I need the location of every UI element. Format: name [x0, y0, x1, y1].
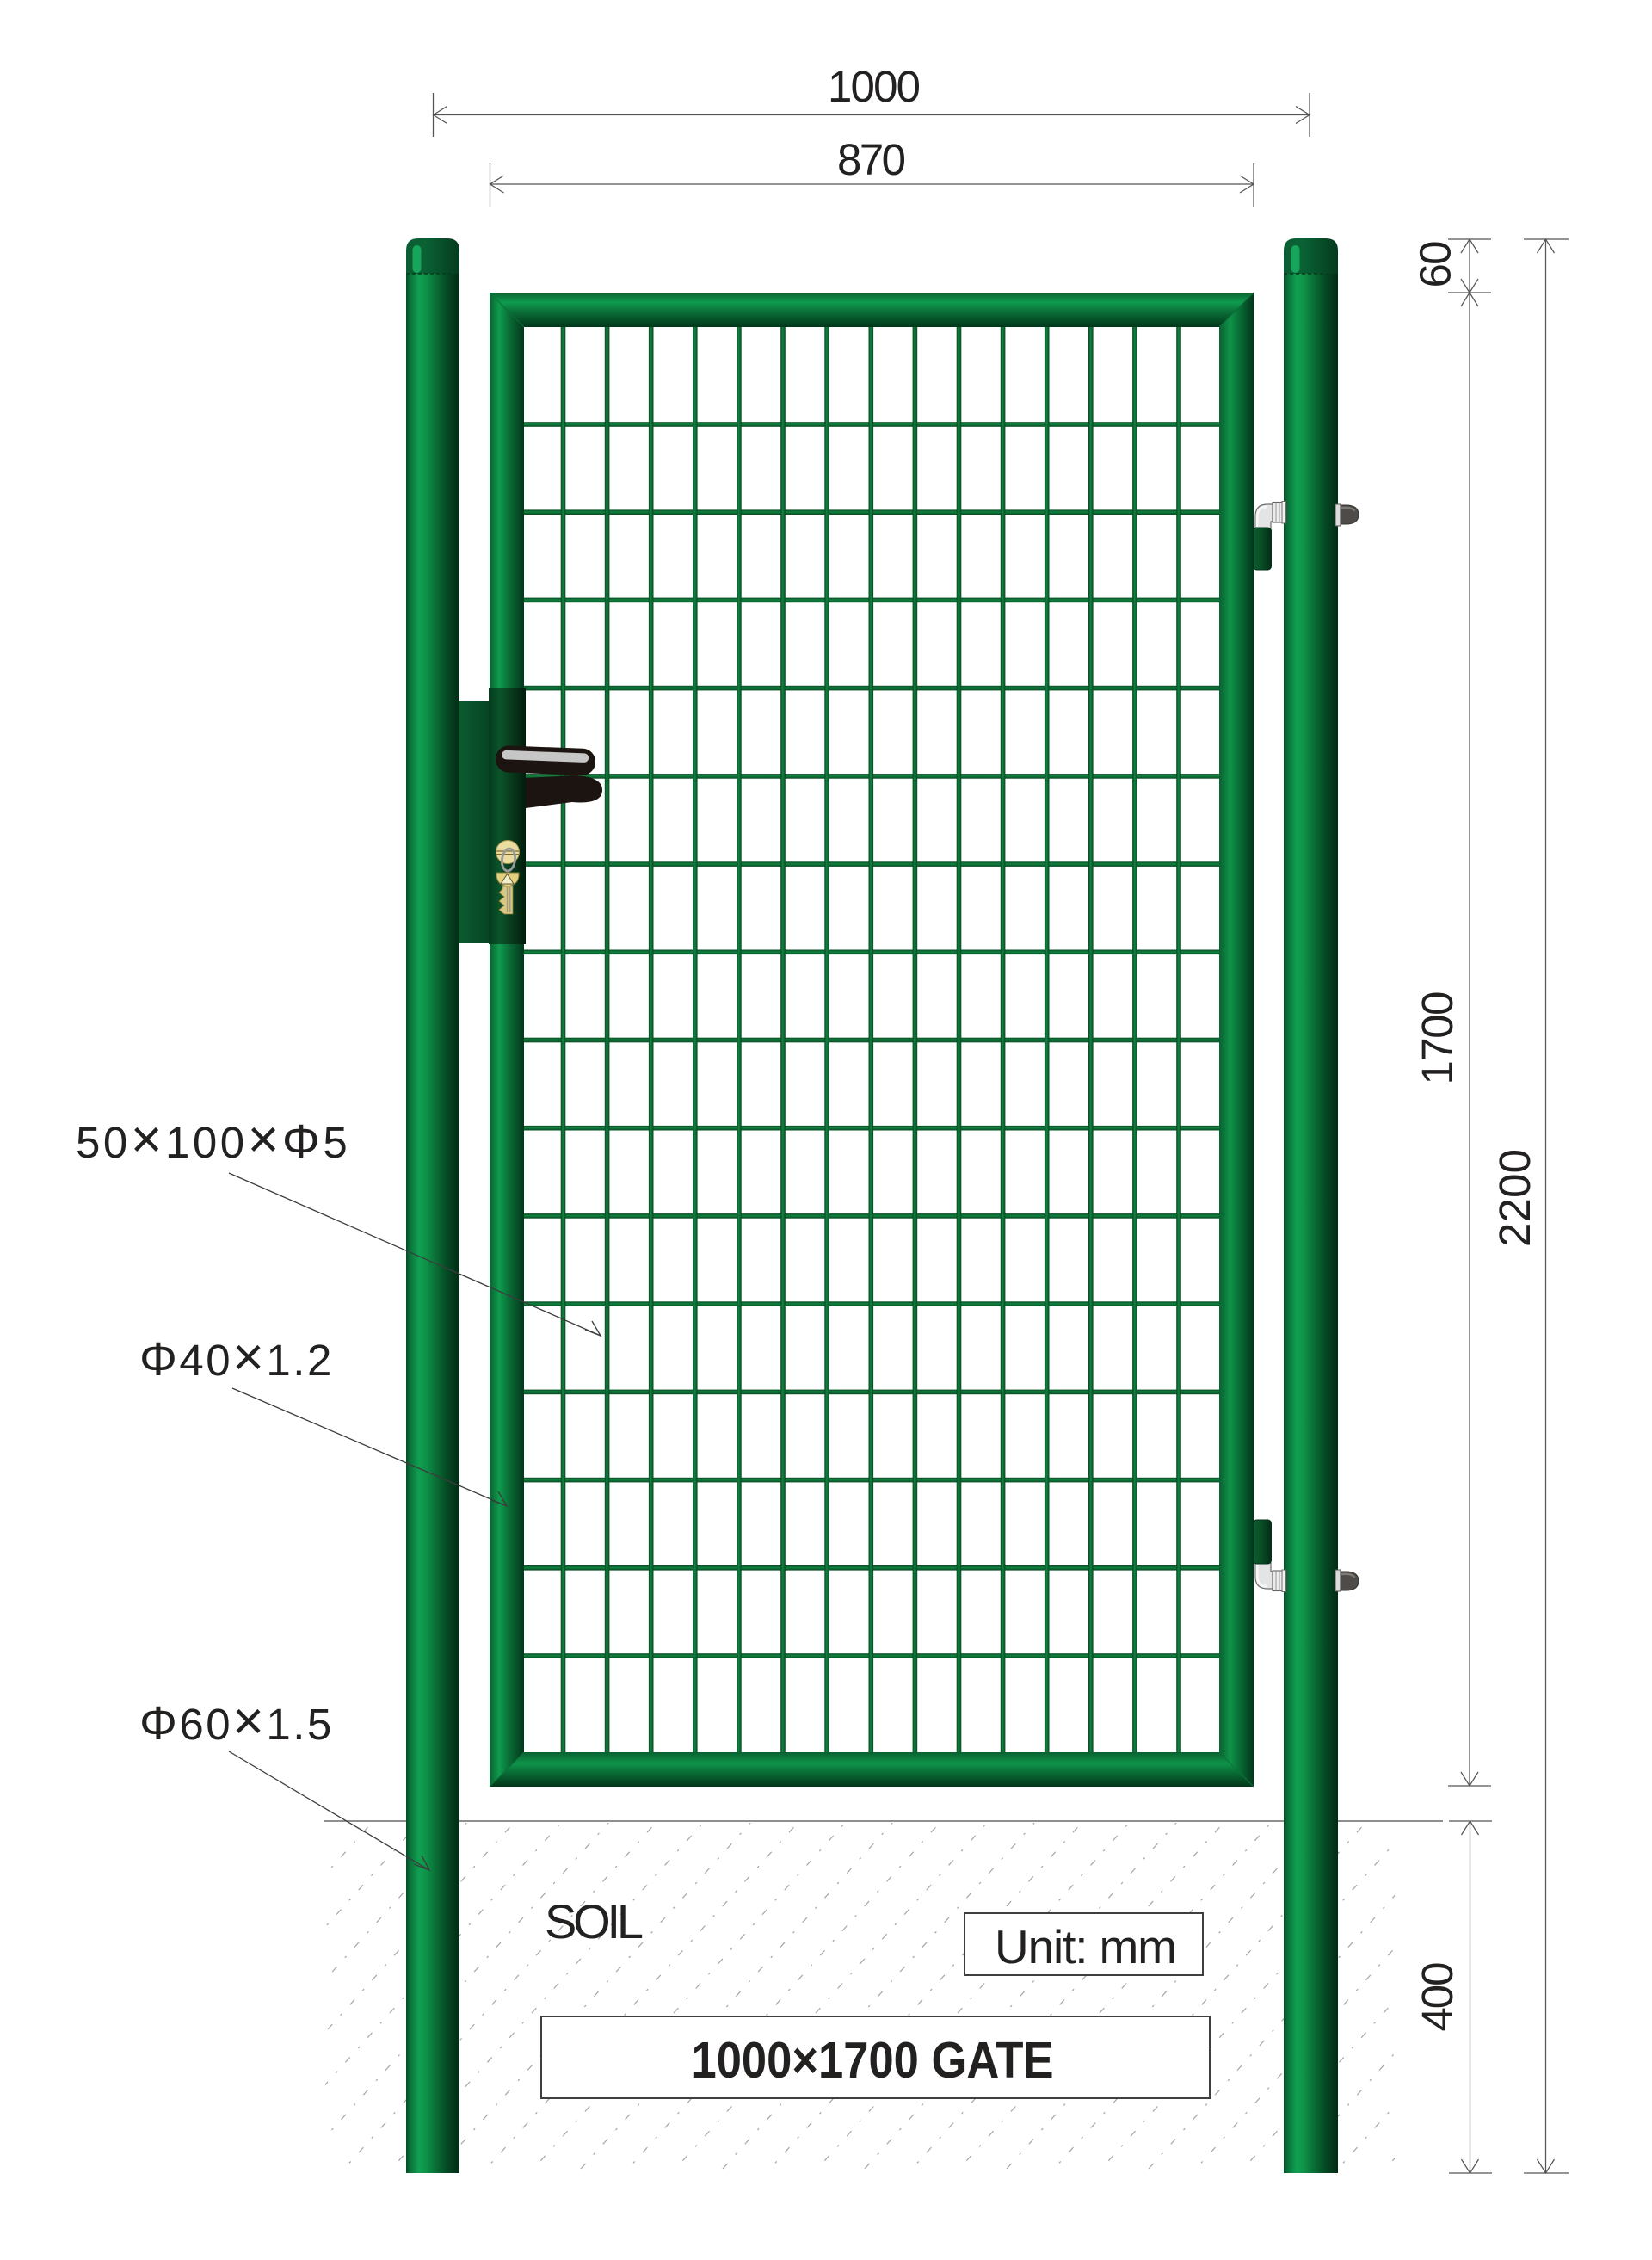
svg-text:1700: 1700 [1413, 991, 1462, 1085]
svg-text:SOIL: SOIL [545, 1894, 644, 1948]
svg-text:1000×1700 GATE: 1000×1700 GATE [692, 2032, 1054, 2089]
svg-text:60: 60 [1411, 241, 1460, 288]
svg-text:50×100×Φ5: 50×100×Φ5 [76, 1109, 350, 1170]
svg-text:400: 400 [1413, 1962, 1462, 2032]
svg-text:870: 870 [837, 135, 906, 184]
svg-text:2200: 2200 [1490, 1149, 1539, 1247]
svg-text:Φ40×1.2: Φ40×1.2 [139, 1327, 334, 1387]
svg-text:Unit: mm: Unit: mm [995, 1920, 1177, 1973]
svg-text:Φ60×1.5: Φ60×1.5 [139, 1691, 334, 1751]
svg-text:1000: 1000 [828, 62, 921, 111]
